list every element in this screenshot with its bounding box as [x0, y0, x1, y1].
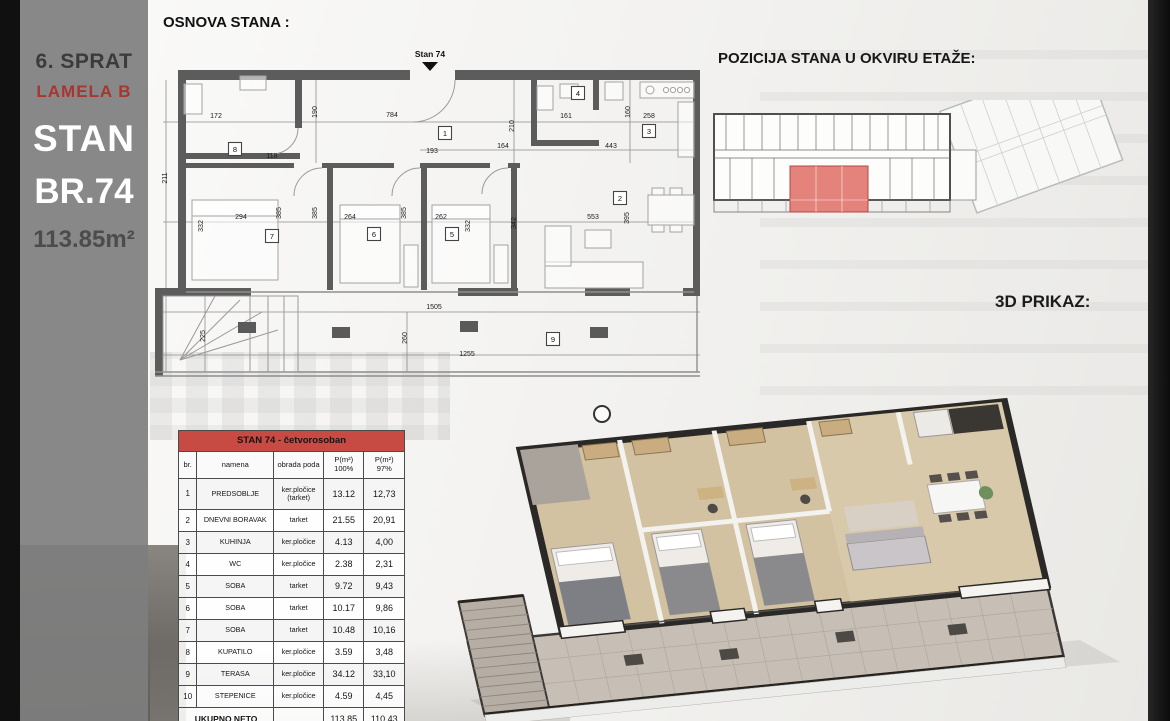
table-row: 4 WC ker.pločice 2.38 2,31: [179, 554, 405, 576]
room-number-box: 1: [439, 127, 452, 140]
dimension-label: 193: [426, 148, 438, 155]
cell-pod: tarket: [274, 620, 324, 642]
room-number: 1: [443, 129, 447, 138]
cell-p100: 3.59: [324, 642, 364, 664]
cell-p97: 9,43: [364, 576, 405, 598]
cell-pod-line2: (tarket): [275, 494, 322, 502]
table-total-row: UKUPNO NETO 113,85 110,43: [179, 708, 405, 721]
apartment-sheet: 6. SPRAT LAMELA B STAN BR.74 113.85m² OS…: [0, 0, 1170, 721]
cell-namena: WC: [197, 554, 274, 576]
cell-pod: ker.pločice: [274, 642, 324, 664]
cell-namena: PREDSOBLJE: [197, 479, 274, 510]
cell-br: 2: [179, 510, 197, 532]
dimension-label: 1255: [459, 351, 475, 358]
table-row: 6 SOBA tarket 10.17 9,86: [179, 598, 405, 620]
cell-br: 1: [179, 479, 197, 510]
table-row: 1 PREDSOBLJE ker.pločice (tarket) 13.12 …: [179, 479, 405, 510]
cell-br: 9: [179, 664, 197, 686]
right-black-strip: [1148, 0, 1170, 721]
room-number-box: 8: [229, 143, 242, 156]
cell-pod: tarket: [274, 510, 324, 532]
cell-p97: 33,10: [364, 664, 405, 686]
table-row: 9 TERASA ker.pločice 34.12 33,10: [179, 664, 405, 686]
cell-pod: ker.pločice: [274, 664, 324, 686]
floor-plan-drawing: Stan 74: [150, 40, 720, 395]
room-number: 8: [233, 145, 237, 154]
cell-p100: 9.72: [324, 576, 364, 598]
cell-br: 3: [179, 532, 197, 554]
render-section-title: 3D PRIKAZ:: [995, 292, 1090, 312]
table-row: 3 KUHINJA ker.pločice 4.13 4,00: [179, 532, 405, 554]
dimension-label: 172: [210, 113, 222, 120]
cell-namena: TERASA: [197, 664, 274, 686]
cell-namena: KUHINJA: [197, 532, 274, 554]
room-number-box: 7: [266, 230, 279, 243]
dimension-label: 294: [235, 214, 247, 221]
cell-namena: STEPENICE: [197, 686, 274, 708]
dimension-label: 190: [312, 106, 319, 118]
col-header-namena: namena: [197, 452, 274, 479]
lamela-label: LAMELA B: [20, 82, 148, 102]
col-header-p100-pct: 100%: [325, 465, 362, 474]
cell-p100: 4.13: [324, 532, 364, 554]
unit-callout-label: Stan 74: [415, 49, 446, 59]
room-number: 9: [551, 335, 555, 344]
room-number-box: 5: [446, 228, 459, 241]
col-header-p97: P(m²) 97%: [364, 452, 405, 479]
area-table: STAN 74 - četvorosoban br. namena obrada…: [178, 430, 405, 721]
cell-br: 4: [179, 554, 197, 576]
dimension-label: 385: [401, 207, 408, 219]
cell-p97: 10,16: [364, 620, 405, 642]
dimension-label: 160: [625, 106, 632, 118]
cell-namena: SOBA: [197, 598, 274, 620]
cell-p100: 34.12: [324, 664, 364, 686]
cell-namena: SOBA: [197, 576, 274, 598]
unit-callout-arrow-icon: [422, 62, 438, 71]
dimension-label: 1505: [426, 304, 442, 311]
dimension-label: 258: [643, 113, 655, 120]
sidebar: 6. SPRAT LAMELA B STAN BR.74 113.85m²: [20, 0, 148, 721]
room-number: 2: [618, 194, 622, 203]
dimension-label: 332: [465, 220, 472, 232]
render-mirror: [594, 406, 610, 422]
table-row: 8 KUPATILO ker.pločice 3.59 3,48: [179, 642, 405, 664]
dimension-label: 118: [266, 153, 277, 160]
unit-number-label: BR.74: [20, 172, 148, 212]
dimension-label: 211: [162, 172, 169, 183]
render-apartment: [425, 401, 1068, 721]
dimension-label: 385: [276, 207, 283, 219]
unit-area-label: 113.85m²: [20, 226, 148, 254]
cell-p97: 9,86: [364, 598, 405, 620]
dimension-label: 332: [198, 220, 205, 232]
dimension-label: 395: [624, 212, 631, 224]
cell-p100: 2.38: [324, 554, 364, 576]
cell-p97: 12,73: [364, 479, 405, 510]
cell-br: 6: [179, 598, 197, 620]
cell-br: 7: [179, 620, 197, 642]
cell-pod: ker.pločice: [274, 686, 324, 708]
total-pod-empty: [274, 708, 324, 721]
cell-br: 5: [179, 576, 197, 598]
cell-p97: 4,00: [364, 532, 405, 554]
cell-pod: ker.pločice (tarket): [274, 479, 324, 510]
dimension-label: 385: [312, 207, 319, 219]
col-header-p100: P(m²) 100%: [324, 452, 364, 479]
room-number-box: 3: [643, 125, 656, 138]
total-label: UKUPNO NETO: [179, 708, 274, 721]
table-row: 2 DNEVNI BORAVAK tarket 21.55 20,91: [179, 510, 405, 532]
cell-namena: SOBA: [197, 620, 274, 642]
cell-pod: ker.pločice: [274, 532, 324, 554]
total-p97: 110,43: [364, 708, 405, 721]
dimension-label: 342: [511, 217, 518, 229]
plan-section-title: OSNOVA STANA :: [163, 14, 290, 31]
render-stairs: [458, 595, 549, 715]
room-number-box: 6: [368, 228, 381, 241]
dimension-label: 443: [605, 143, 617, 150]
furniture: [184, 76, 694, 288]
dimension-label: 260: [402, 332, 409, 344]
table-title: STAN 74 - četvorosoban: [179, 431, 405, 452]
dimension-label: 553: [587, 214, 599, 221]
dimension-label: 164: [497, 143, 509, 150]
cell-br: 8: [179, 642, 197, 664]
cell-p97: 3,48: [364, 642, 405, 664]
terrace-stairs: [163, 296, 298, 372]
highlighted-unit: [790, 166, 868, 212]
room-number: 5: [450, 230, 454, 239]
table-title-row: STAN 74 - četvorosoban: [179, 431, 405, 452]
col-header-p97-pct: 97%: [365, 465, 403, 474]
room-number-box: 9: [547, 333, 560, 346]
cell-p100: 21.55: [324, 510, 364, 532]
cell-p97: 20,91: [364, 510, 405, 532]
room-number: 7: [270, 232, 274, 241]
cell-pod: tarket: [274, 598, 324, 620]
room-number-box: 2: [614, 192, 627, 205]
dimension-label: 210: [509, 120, 516, 132]
position-section-title: POZICIJA STANA U OKVIRU ETAŽE:: [718, 50, 976, 67]
room-number: 4: [576, 89, 580, 98]
wing-connector: [950, 150, 976, 200]
dimension-label: 264: [344, 214, 356, 221]
total-p100: 113,85: [324, 708, 364, 721]
cell-p100: 10.17: [324, 598, 364, 620]
cell-p97: 4,45: [364, 686, 405, 708]
floor-label: 6. SPRAT: [20, 50, 148, 74]
room-number: 6: [372, 230, 376, 239]
cell-p97: 2,31: [364, 554, 405, 576]
cell-p100: 4.59: [324, 686, 364, 708]
table-row: 10 STEPENICE ker.pločice 4.59 4,45: [179, 686, 405, 708]
room-number-box: 4: [572, 87, 585, 100]
cell-pod: tarket: [274, 576, 324, 598]
dimension-label: 225: [200, 330, 207, 342]
dimension-label: 161: [560, 113, 572, 120]
render-3d-view: [420, 385, 1150, 721]
floor-position-diagram: [700, 100, 1160, 240]
col-header-pod: obrada poda: [274, 452, 324, 479]
cell-p100: 10.48: [324, 620, 364, 642]
dimension-label: 262: [435, 214, 447, 221]
door-swings: [272, 80, 508, 196]
cell-namena: DNEVNI BORAVAK: [197, 510, 274, 532]
cell-namena: KUPATILO: [197, 642, 274, 664]
table-header-row: br. namena obrada poda P(m²) 100% P(m²) …: [179, 452, 405, 479]
room-number: 3: [647, 127, 651, 136]
dimension-label: 784: [386, 112, 398, 119]
table-row: 5 SOBA tarket 9.72 9,43: [179, 576, 405, 598]
table-row: 7 SOBA tarket 10.48 10,16: [179, 620, 405, 642]
left-black-strip: [0, 0, 20, 721]
stan-label: STAN: [20, 118, 148, 160]
cell-pod: ker.pločice: [274, 554, 324, 576]
col-header-br: br.: [179, 452, 197, 479]
cell-br: 10: [179, 686, 197, 708]
cell-p100: 13.12: [324, 479, 364, 510]
